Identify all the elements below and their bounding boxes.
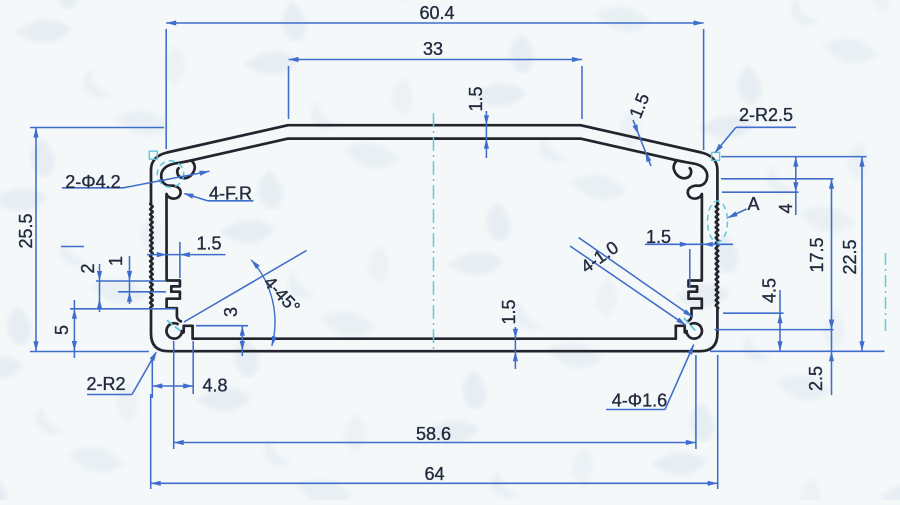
svg-text:1.5: 1.5: [499, 299, 519, 324]
svg-text:2-Φ4.2: 2-Φ4.2: [65, 172, 120, 192]
svg-text:A: A: [747, 194, 759, 214]
svg-text:5: 5: [52, 325, 72, 335]
svg-text:22.5: 22.5: [840, 239, 860, 274]
svg-text:4-F.R: 4-F.R: [209, 184, 252, 204]
svg-text:1.5: 1.5: [646, 227, 671, 247]
svg-text:4.5: 4.5: [760, 278, 780, 303]
svg-text:1.5: 1.5: [466, 86, 486, 111]
svg-text:58.6: 58.6: [416, 424, 451, 444]
svg-text:4: 4: [776, 203, 796, 213]
svg-text:2-R2.5: 2-R2.5: [739, 105, 793, 125]
svg-text:4.8: 4.8: [202, 376, 227, 396]
svg-text:4-Φ1.6: 4-Φ1.6: [612, 391, 667, 411]
svg-text:2-R2: 2-R2: [86, 374, 125, 394]
svg-text:1: 1: [106, 256, 126, 266]
svg-text:60.4: 60.4: [419, 3, 454, 23]
svg-text:64: 64: [424, 464, 444, 484]
svg-text:2: 2: [78, 263, 98, 273]
svg-text:25.5: 25.5: [16, 213, 36, 248]
svg-text:1.5: 1.5: [196, 234, 221, 254]
svg-text:2.5: 2.5: [806, 366, 826, 391]
svg-text:17.5: 17.5: [807, 237, 827, 272]
svg-text:3: 3: [221, 307, 241, 317]
svg-text:33: 33: [423, 39, 443, 59]
